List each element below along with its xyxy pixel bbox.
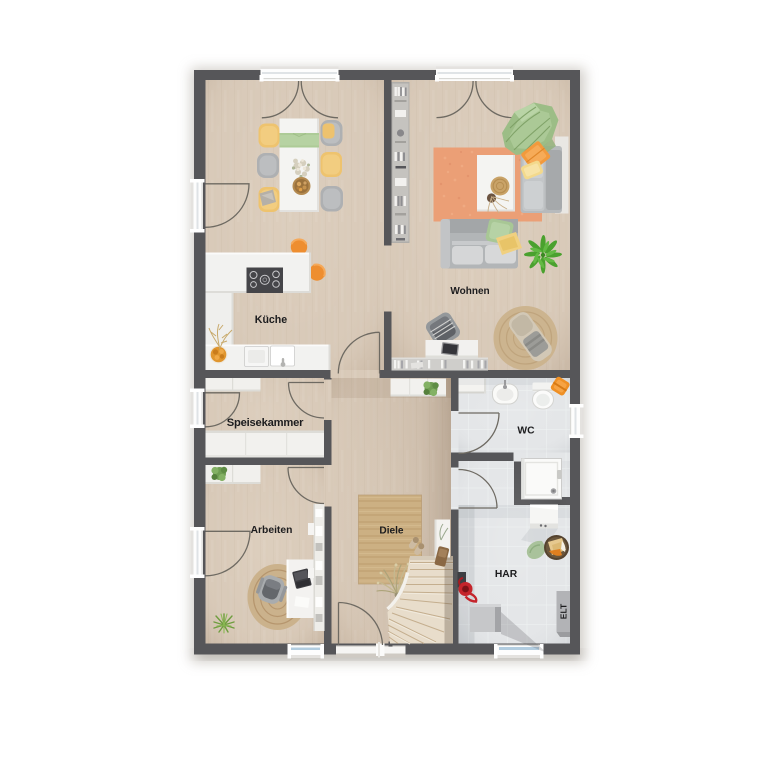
svg-text:ELT: ELT <box>559 603 569 619</box>
svg-text:WC: WC <box>517 426 535 437</box>
svg-text:Arbeiten: Arbeiten <box>251 525 293 536</box>
svg-text:Wohnen: Wohnen <box>450 286 489 297</box>
svg-text:Küche: Küche <box>255 314 287 326</box>
svg-text:HAR: HAR <box>495 569 518 580</box>
svg-text:Diele: Diele <box>379 526 404 537</box>
svg-text:Speisekammer: Speisekammer <box>227 417 304 429</box>
